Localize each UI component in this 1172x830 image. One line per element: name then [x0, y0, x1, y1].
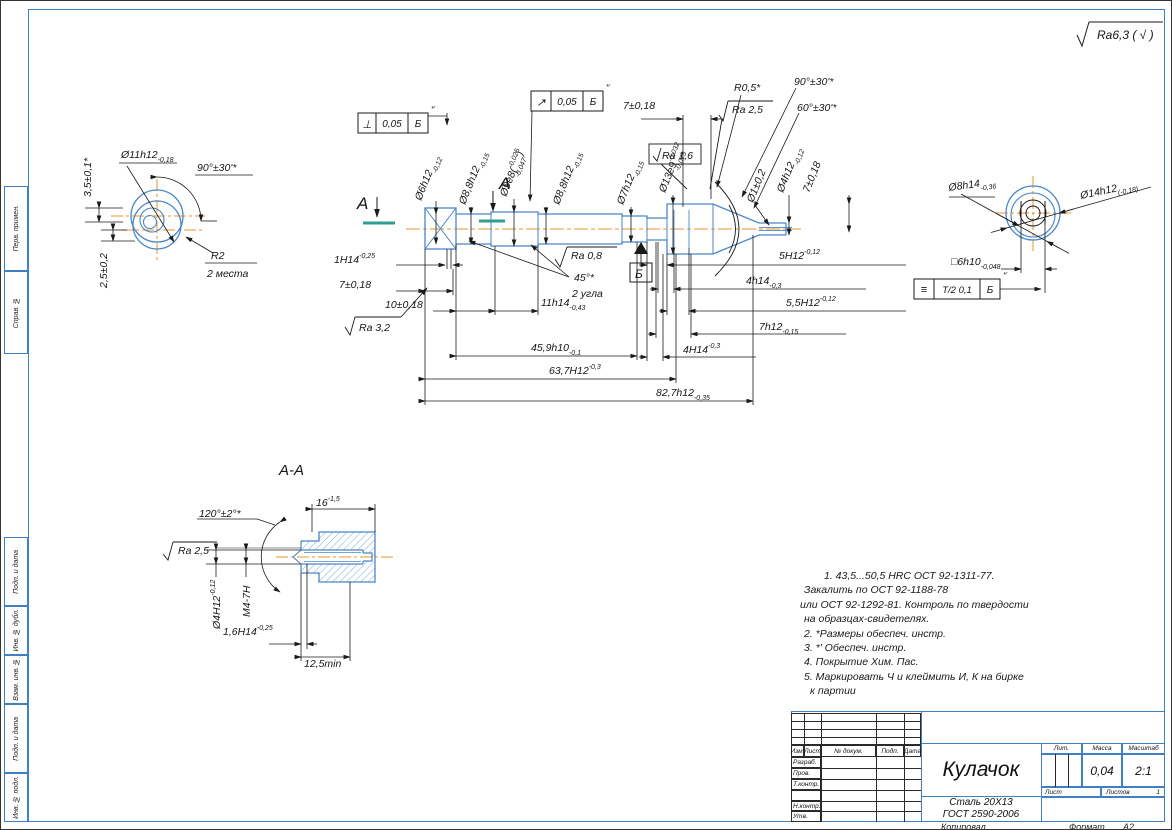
dimension-label: Ra 1,6	[662, 150, 693, 162]
lit-cell	[1041, 754, 1082, 787]
mass-header: Масса	[1082, 743, 1122, 754]
dimension-label: 16-1,5	[316, 496, 340, 509]
mass-value-text: 0,04	[1090, 764, 1113, 778]
sheet-label: Лист	[1045, 789, 1062, 796]
material-line: Сталь 20Х13	[949, 797, 1012, 809]
dimension-label: 4H14-0,3	[683, 343, 720, 356]
row-empty	[791, 790, 821, 801]
row-label: Т.контр.	[793, 781, 819, 788]
dimension-label: 120°±2°*	[199, 508, 242, 520]
gdt-note: *'	[1003, 272, 1008, 279]
gdt-datum: Б	[590, 97, 597, 108]
dimension-label: Ø8h14-0,36	[947, 175, 997, 197]
dimension-label: R0,5*	[734, 82, 761, 94]
left-end-view	[85, 163, 257, 263]
material-zone: Сталь 20Х13 ГОСТ 2590-2006	[921, 796, 1041, 822]
gdt-symbol: ↗	[536, 97, 546, 109]
row-label: Разраб.	[793, 759, 817, 766]
gdt-note: *'	[431, 106, 436, 113]
format-label: Формат	[1069, 822, 1105, 830]
technical-requirement-line: 3. *' Обеспеч. инстр.	[796, 641, 1086, 655]
sheets-label: Листов	[1106, 789, 1130, 796]
dimension-label: 5H12-0,12	[779, 249, 820, 262]
dimension-label: Ra 3,2	[359, 322, 390, 334]
row-utv: Утв.	[791, 811, 821, 822]
dimension-label: 10±0,18	[385, 299, 423, 311]
dimension-label: 7±0,18	[801, 160, 824, 194]
scale-value: 2:1	[1122, 754, 1165, 787]
col-header-label: Подп.	[881, 748, 898, 755]
dimension-label: 82,7h12-0,35	[656, 387, 710, 402]
dimension-label: 2,5±0,2	[98, 253, 110, 289]
datum-letter: Б	[635, 267, 643, 281]
section-view-a-a	[163, 504, 393, 661]
col-header-label: Изм.	[791, 748, 805, 755]
row-prov: Пров.	[791, 768, 821, 779]
dimension-label: 60°±30'*	[797, 102, 837, 114]
org-cell	[1041, 797, 1165, 822]
col-header-sign: Подп.	[876, 745, 904, 757]
dimension-label: Ø8,8h12-0,15	[456, 149, 491, 208]
technical-requirement-line: 1. 43,5...50,5 HRC ОСТ 92-1311-77.	[796, 569, 1086, 583]
gdt-symbol: ⊥	[362, 119, 372, 131]
dimension-label: 1H14-0,25	[334, 253, 375, 266]
dimension-label: 63,7H12-0,3	[549, 364, 601, 377]
dimension-label: Ra 2,5	[178, 545, 209, 557]
dimension-label: Ø1±0,2	[744, 168, 768, 205]
dimension-label: 5,5H12-0,12	[786, 296, 836, 309]
gdt-value: Т/2 0,1	[942, 285, 972, 296]
dimension-label: 2 места	[206, 268, 249, 280]
dimension-label: Ra 2,5	[732, 104, 763, 116]
technical-requirement-line: к партии	[796, 684, 1086, 698]
gdt-datum: Б	[415, 119, 422, 130]
scale-label: Масштаб	[1128, 745, 1158, 752]
row-label: Утв.	[793, 813, 808, 820]
row-tkontr: Т.контр.	[791, 779, 821, 790]
technical-requirement-line: на образцах-свидетелях.	[796, 612, 1086, 626]
col-header-list: Лист	[804, 745, 821, 757]
dimension-label: 1,6H14-0,25	[223, 625, 273, 638]
dimension-label: Ø14h12(-0,18)	[1078, 178, 1139, 205]
gdt-datum: Б	[987, 285, 994, 296]
col-header-label: № докум.	[834, 748, 863, 755]
sheets-cell: Листов 1	[1101, 787, 1165, 797]
technical-requirements: 1. 43,5...50,5 HRC ОСТ 92-1311-77.Закали…	[796, 569, 1086, 699]
scale-value-text: 2:1	[1135, 764, 1152, 778]
dimension-label: М4-7Н	[241, 585, 253, 617]
technical-requirement-line: Закалить по ОСТ 92-1188-78	[796, 583, 1086, 597]
gdt-symbol: ≡	[921, 284, 927, 296]
mass-value: 0,04	[1082, 754, 1122, 787]
gdt-value: 0,05	[382, 119, 402, 130]
col-header-doc: № докум.	[821, 745, 876, 757]
drawing-sheet: Перв. примен. Справ. № Подп. и дата Инв.…	[0, 0, 1172, 830]
col-header-label: Дата	[904, 748, 921, 755]
copied-label: Копировал	[941, 822, 986, 830]
row-razrab: Разраб.	[791, 757, 821, 768]
part-name-text: Кулачок	[943, 758, 1020, 782]
gdt-value: 0,05	[557, 97, 577, 108]
main-view	[345, 88, 906, 405]
dimension-label: □6h10-0,048	[951, 256, 1001, 271]
dimension-label: 2 угла	[571, 288, 603, 300]
scale-header: Масштаб	[1122, 743, 1165, 754]
dimension-label: Ø6h12-0,12	[412, 154, 444, 205]
mass-label: Масса	[1092, 745, 1111, 752]
drawing-canvas: ⊥ 0,05 Б *' ↗ 0,05 Б *' ≡ Т/2 0,1 Б *'	[1, 1, 1172, 830]
row-label: Пров.	[793, 770, 810, 777]
material-line: ГОСТ 2590-2006	[943, 809, 1019, 821]
sheets-value: 1	[1156, 789, 1160, 796]
dimension-label: А	[356, 194, 368, 213]
lit-header: Лит.	[1041, 743, 1082, 754]
dimension-label: 4h14-0,3	[746, 275, 782, 290]
dimension-label: Ø7h12-0,15	[614, 158, 646, 209]
technical-requirement-line: 2. *Размеры обеспеч. инстр.	[796, 627, 1086, 641]
dimension-label: Ø8,8h12-0,15	[550, 149, 585, 208]
dimension-label: R2	[211, 250, 225, 262]
sheet-cell: Лист	[1041, 787, 1101, 797]
dimension-label: 45°*	[574, 272, 595, 284]
row-nkontr: Н.контр.	[791, 801, 821, 811]
technical-requirement-line: или ОСТ 92-1292-81. Контроль по твердост…	[796, 598, 1086, 612]
technical-requirement-line: 4. Покрытие Хим. Пас.	[796, 655, 1086, 669]
col-header-label: Лист	[804, 748, 821, 755]
general-roughness-text: Ra6,3 ( √ )	[1097, 28, 1154, 42]
dimension-label: 7±0,18	[339, 279, 371, 291]
format-value: А2	[1123, 822, 1134, 830]
dimension-label: Ra 0,8	[571, 250, 602, 262]
dimension-label: 12,5min	[304, 658, 342, 670]
dimension-label: 90°±30'*	[197, 162, 237, 174]
col-header-date: Дата	[904, 745, 921, 757]
dimension-label: 3,5±0,1*	[82, 157, 94, 197]
dimension-label: Ø4H12-0,12	[210, 580, 223, 630]
dimension-label: 45,9h10-0,1	[531, 342, 581, 357]
technical-requirement-line: 5. Маркировать Ч и клеймить И, К на бирк…	[796, 670, 1086, 684]
gdt-note: *'	[606, 84, 611, 91]
dimension-label: 7±0,18	[623, 100, 655, 112]
dimension-label: Ø11h12-0,18	[120, 149, 174, 164]
dimension-label: 90°±30'*	[794, 76, 834, 88]
part-name: Кулачок	[921, 743, 1041, 796]
row-label: Н.контр.	[793, 803, 821, 810]
title-block: Изм. Лист № докум. Подп. Дата Разраб. Пр…	[791, 711, 1165, 822]
lit-label: Лит.	[1054, 745, 1069, 752]
col-header-izm: Изм.	[791, 745, 804, 757]
dimension-label: А	[498, 174, 510, 193]
dimension-label: А-А	[278, 462, 304, 479]
gdt-frame-symmetry	[914, 279, 1041, 299]
